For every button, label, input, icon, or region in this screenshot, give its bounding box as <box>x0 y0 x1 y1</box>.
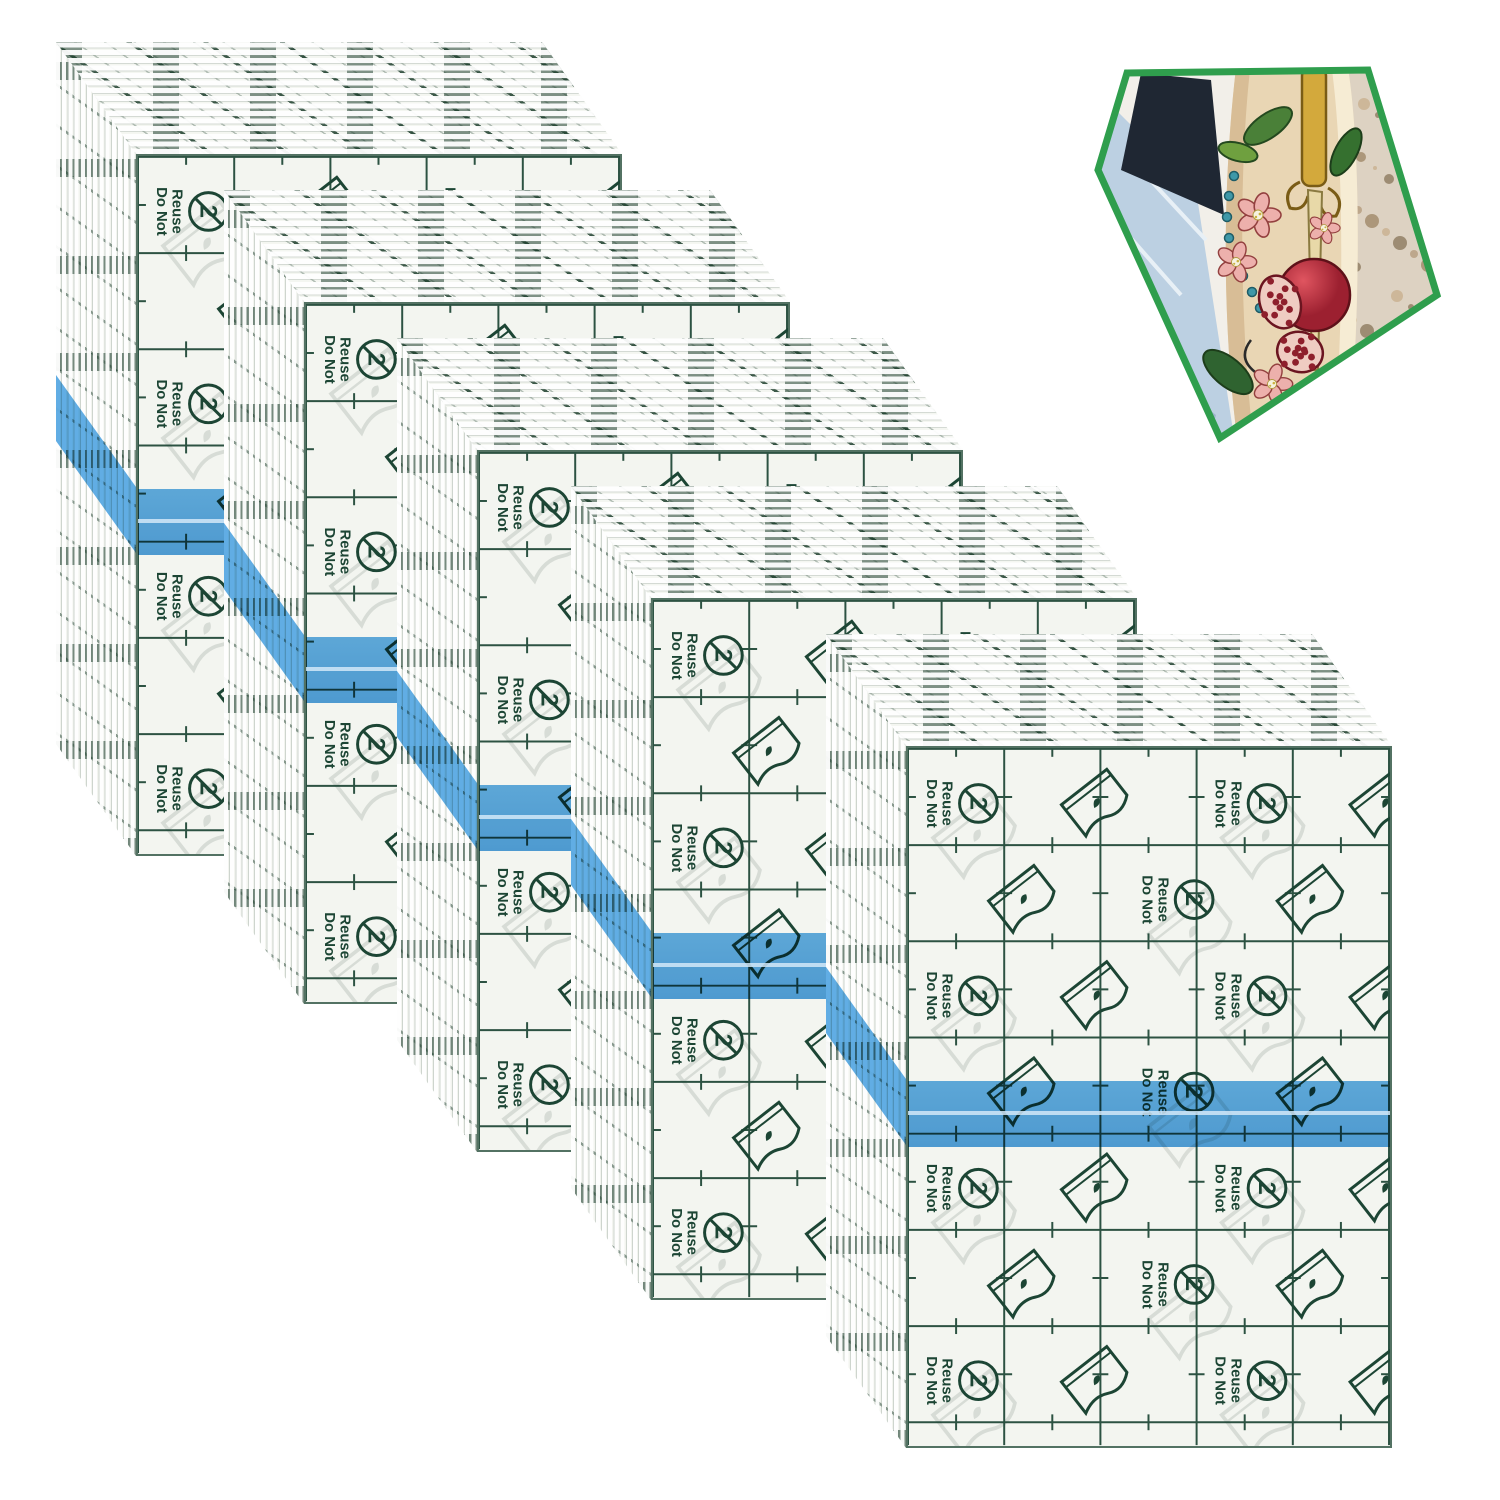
do-not-label: Do Not <box>321 912 337 961</box>
stack-top-edges <box>224 190 790 302</box>
do-not-label: Do Not <box>923 779 939 828</box>
do-not-label: Do Not <box>153 572 169 621</box>
stack-left-edges <box>397 338 477 1152</box>
do-not-label: Do Not <box>668 823 684 872</box>
reuse-label: Reuse <box>337 530 353 575</box>
do-not-label: Do Not <box>153 764 169 813</box>
do-not-label: Do Not <box>494 1060 510 1109</box>
reuse-label: Reuse <box>337 722 353 767</box>
do-not-label: Do Not <box>923 1164 939 1213</box>
blue-stripe-edge-cascade <box>397 671 477 849</box>
do-not-label: Do Not <box>1211 779 1227 828</box>
blue-stripe-edge-cascade <box>571 819 651 997</box>
reuse-label: Reuse <box>510 870 526 915</box>
reuse-label: Reuse <box>169 189 185 234</box>
reuse-label: Reuse <box>939 781 955 826</box>
reuse-label: Reuse <box>1227 781 1243 826</box>
do-not-label: Do Not <box>153 187 169 236</box>
blue-stripe-edge-cascade <box>56 375 136 553</box>
do-not-label: Do Not <box>923 1356 939 1405</box>
tattoo-photo <box>1086 40 1456 450</box>
do-not-label: Do Not <box>153 379 169 428</box>
do-not-label: Do Not <box>1139 1260 1155 1309</box>
reuse-label: Reuse <box>169 574 185 619</box>
reuse-label: Reuse <box>1227 1166 1243 1211</box>
product-photo: Do Not Reuse 2 Do Not Reuse 2 Do Not <box>0 0 1500 1500</box>
blue-stripe-edge-cascade <box>826 967 906 1145</box>
reuse-label: Reuse <box>169 382 185 427</box>
do-not-label: Do Not <box>1139 875 1155 924</box>
do-not-label: Do Not <box>494 675 510 724</box>
reuse-label: Reuse <box>510 485 526 530</box>
do-not-label: Do Not <box>1211 1356 1227 1405</box>
stack-left-edges <box>571 486 651 1300</box>
film-sheet-face: Do Not Reuse 2 Do Not Reuse 2 Do Not <box>906 746 1392 1448</box>
reuse-label: Reuse <box>1154 1262 1170 1307</box>
stripe-split-line <box>908 1111 1390 1115</box>
reuse-label: Reuse <box>684 1018 700 1063</box>
stack-top-edges <box>571 486 1137 598</box>
reuse-label: Reuse <box>1227 974 1243 1019</box>
do-not-label: Do Not <box>494 483 510 532</box>
stack-left-edges <box>224 190 304 1004</box>
stack-left-edges <box>56 42 136 856</box>
reuse-label: Reuse <box>939 1358 955 1403</box>
reuse-label: Reuse <box>510 678 526 723</box>
reuse-label: Reuse <box>169 766 185 811</box>
reuse-label: Reuse <box>337 914 353 959</box>
stack-top-edges <box>397 338 963 450</box>
do-not-label: Do Not <box>494 868 510 917</box>
do-not-label: Do Not <box>668 1016 684 1065</box>
do-not-label: Do Not <box>1211 1164 1227 1213</box>
blue-stripe-edge-cascade <box>224 523 304 701</box>
reuse-label: Reuse <box>939 1166 955 1211</box>
tattoo-photo-inset <box>1086 40 1456 450</box>
reuse-label: Reuse <box>1154 877 1170 922</box>
do-not-label: Do Not <box>321 527 337 576</box>
film-stack-5: Do Not Reuse 2 Do Not Reuse 2 Do Not <box>826 634 1392 1448</box>
reuse-label: Reuse <box>939 974 955 1019</box>
do-not-label: Do Not <box>1211 971 1227 1020</box>
reuse-label: Reuse <box>684 826 700 871</box>
do-not-label: Do Not <box>321 720 337 769</box>
do-not-label: Do Not <box>668 1208 684 1257</box>
stack-top-edges <box>826 634 1392 746</box>
do-not-label: Do Not <box>923 971 939 1020</box>
do-not-label: Do Not <box>668 631 684 680</box>
reuse-label: Reuse <box>684 1210 700 1255</box>
do-not-label: Do Not <box>321 335 337 384</box>
reuse-label: Reuse <box>510 1062 526 1107</box>
reuse-label: Reuse <box>684 633 700 678</box>
stack-top-edges <box>56 42 622 154</box>
stack-left-edges <box>826 634 906 1448</box>
reuse-label: Reuse <box>1227 1358 1243 1403</box>
reuse-label: Reuse <box>337 337 353 382</box>
